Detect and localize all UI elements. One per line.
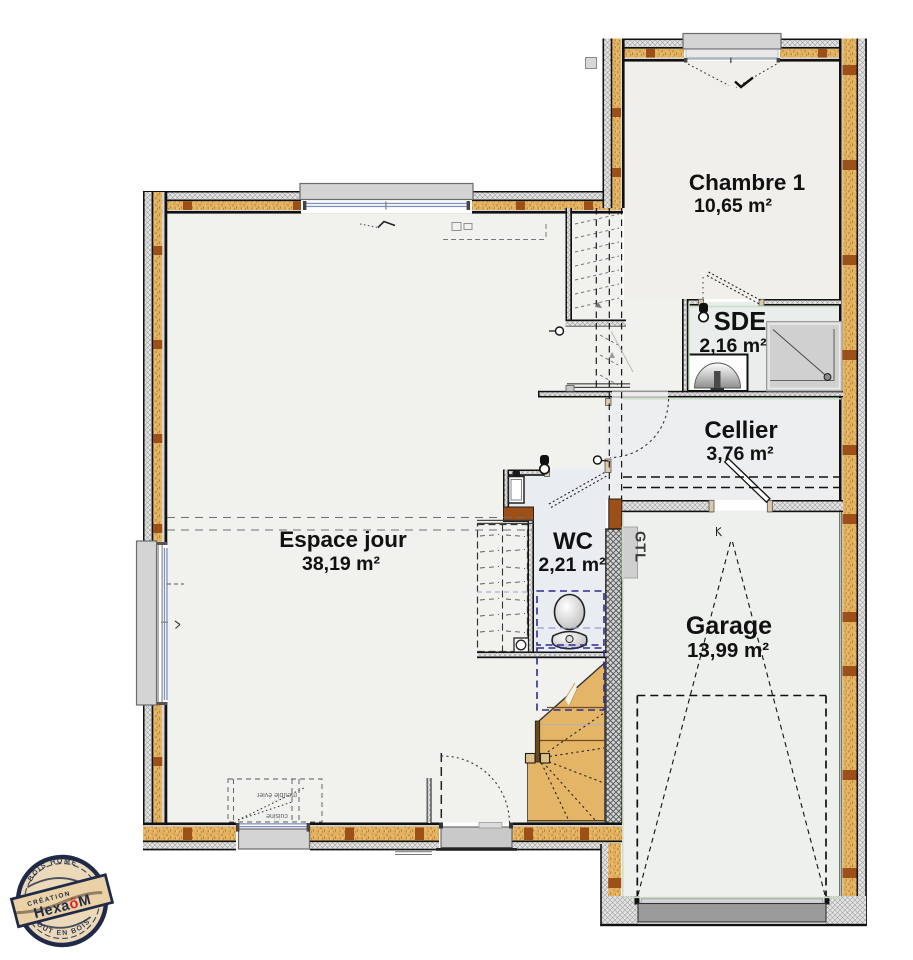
svg-text:SDE: SDE	[714, 308, 766, 336]
svg-text:10,65 m²: 10,65 m²	[694, 195, 773, 217]
svg-text:Garage: Garage	[686, 612, 772, 640]
svg-text:GTL: GTL	[632, 531, 648, 563]
svg-text:meuble évier: meuble évier	[256, 791, 297, 798]
svg-text:Espace jour: Espace jour	[279, 527, 407, 552]
svg-text:Cellier: Cellier	[704, 417, 777, 444]
svg-text:13,99 m²: 13,99 m²	[687, 639, 769, 662]
svg-text:WC: WC	[553, 528, 593, 555]
svg-text:2,21 m²: 2,21 m²	[538, 554, 606, 576]
svg-text:38,19 m²: 38,19 m²	[302, 553, 381, 575]
svg-text:cuisine: cuisine	[266, 812, 288, 819]
svg-text:2,16 m²: 2,16 m²	[699, 335, 767, 357]
svg-text:3,76 m²: 3,76 m²	[706, 443, 774, 465]
svg-text:Chambre 1: Chambre 1	[689, 170, 805, 195]
